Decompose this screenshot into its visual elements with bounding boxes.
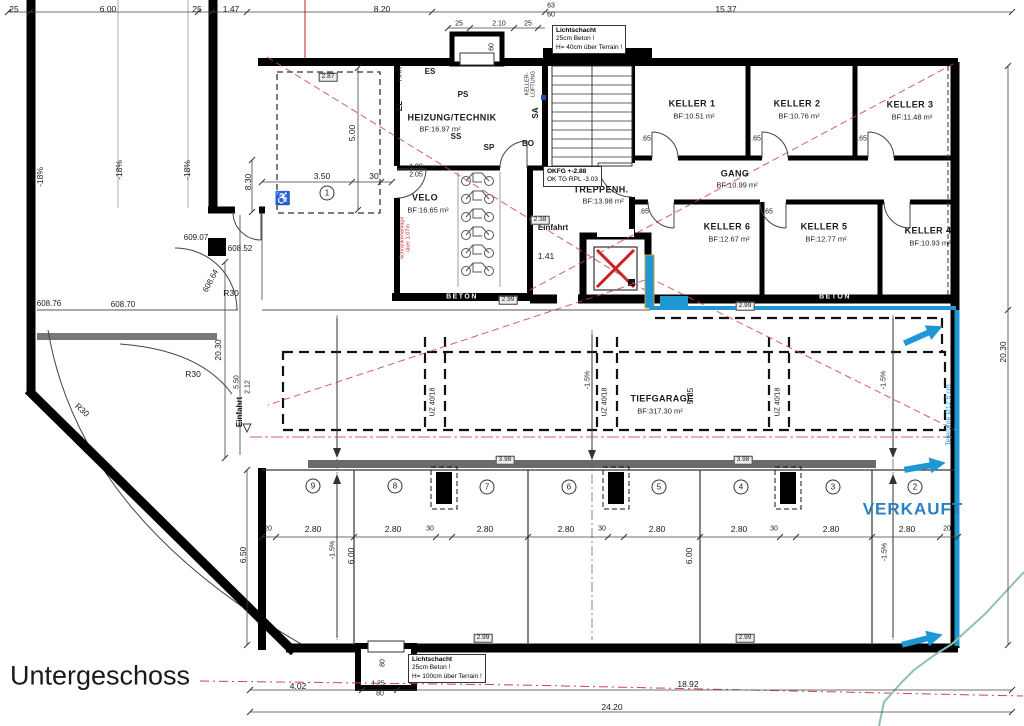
plan-label: 20.30 [999, 341, 1008, 362]
plan-label: 2.87 [319, 73, 338, 82]
room-label-keller-3: KELLER 3 [887, 101, 934, 110]
plan-label: UZ 40/18 [430, 388, 437, 417]
plan-label: R30 [185, 370, 201, 379]
room-label-heizung: HEIZUNG/TECHNIK [408, 114, 497, 123]
plan-label: R30 [73, 402, 90, 419]
plan-label: 608.64 [202, 268, 221, 293]
parking-spot-8: 8 [388, 479, 403, 494]
plan-label: -18% [183, 160, 192, 180]
plan-label: BF:12.77 m² [805, 235, 846, 243]
plan-label: 2.99 [474, 634, 493, 643]
plan-label: 6.00 [100, 5, 117, 14]
room-label-keller-4: KELLER 4 [905, 227, 952, 236]
plan-label: 2.80 [385, 525, 402, 534]
plan-label: 60 [489, 43, 496, 51]
plan-label: 2.99 [736, 634, 755, 643]
plan-label: 63 [547, 3, 555, 10]
plan-label: 5.00 [348, 125, 357, 142]
plan-label: SS [451, 133, 462, 141]
plan-label: 6.00 [685, 548, 694, 565]
parking-spot-1: 1 [320, 186, 335, 201]
plan-label: BF:16.65 m² [407, 206, 448, 214]
plan-label: 8.20 [374, 5, 391, 14]
plan-label: 2.38 [531, 216, 550, 225]
verkauft-label: VERKAUFT [863, 501, 964, 518]
plan-label: 2.80 [558, 525, 575, 534]
plan-label: 5.85 [686, 388, 695, 405]
plan-label: BF:13.98 m² [582, 197, 623, 205]
plan-label: 608.70 [111, 301, 135, 309]
plan-label: 6.50 [239, 547, 248, 564]
plan-label: 2.05 [409, 172, 423, 179]
plan-label: 30 [426, 526, 434, 533]
plan-label: -1.5% [585, 371, 592, 389]
plan-label: BETON [819, 294, 851, 301]
plan-label: 2.12 [245, 380, 252, 394]
plan-label: über 1.07m [406, 224, 412, 252]
plan-label: .65 [763, 209, 773, 216]
plan-label: BF:317.30 m² [637, 407, 682, 415]
plan-label: ES [425, 68, 436, 76]
plan-label: SP [484, 144, 495, 152]
plan-label: 2.10 [492, 21, 506, 28]
plan-label: 609.07 [184, 234, 208, 242]
plan-label: 15.37 [715, 5, 736, 14]
lichtschacht-callout-top: Lichtschacht25cm Beton !H= 40cm über Ter… [552, 25, 626, 54]
plan-label: .65 [641, 136, 651, 143]
plan-label: 2.80 [649, 525, 666, 534]
plan-label: HAK [397, 67, 404, 81]
plan-label: -1.5% [882, 543, 889, 561]
plan-label: SA [532, 107, 540, 118]
parking-spot-6: 6 [562, 480, 577, 495]
plan-label: 2.80 [477, 525, 494, 534]
plan-label: 3.50 [314, 172, 331, 181]
plan-label: 8.30 [244, 174, 253, 191]
plan-label: 20 [264, 526, 272, 533]
plan-label: 25 [524, 21, 532, 28]
plan-label: BF:10.99 m² [716, 181, 757, 189]
plan-label: 1.25 [371, 681, 385, 688]
okfg-callout: OKFG +-2.88OK TG RPL -3.03 [543, 166, 602, 187]
plan-label: 25 [9, 5, 18, 14]
plan-label: 30 [369, 172, 378, 181]
plan-label: 3.98 [734, 456, 753, 465]
plan-label: 608.52 [228, 245, 252, 253]
floor-plan: 256.00251.478.20636015.37252.102560-18%-… [0, 0, 1024, 726]
parking-spot-5: 5 [652, 480, 667, 495]
plan-label: 80 [376, 691, 384, 698]
plan-label: Einfahrt [538, 224, 568, 232]
room-label-keller-1: KELLER 1 [669, 100, 716, 109]
plan-label: -18% [36, 167, 45, 187]
wheelchair-icon: ♿ [275, 192, 291, 205]
lichtschacht-callout-bottom: Lichtschacht25cm Beton !H= 100cm über Te… [408, 654, 486, 683]
plan-label: LÜFTUNG [531, 71, 537, 97]
plan-label: R30 [223, 289, 239, 298]
plan-label: 2.99 [736, 302, 755, 311]
parking-spot-7: 7 [480, 480, 495, 495]
plan-label: 2.99 [499, 296, 518, 305]
plan-label: 25 [455, 21, 463, 28]
plan-label: -18% [115, 160, 124, 180]
plan-label: 3.98 [496, 456, 515, 465]
plan-label: EL [396, 101, 404, 111]
plan-label: BF:10.93 m² [909, 239, 950, 247]
plan-label: 2.80 [823, 525, 840, 534]
plan-label: 18.92 [677, 680, 698, 689]
plan-label: 20.30 [214, 339, 223, 360]
plan-label: .65 [751, 136, 761, 143]
room-label-gang: GANG [721, 170, 750, 179]
plan-label: 5.50 [234, 375, 241, 389]
room-label-keller-6: KELLER 6 [704, 223, 751, 232]
plan-label: 60 [547, 12, 555, 19]
plan-label: BF:11.48 m² [892, 113, 933, 121]
plan-label: 608.76 [37, 300, 61, 308]
plan-label: 6.00 [347, 548, 356, 565]
plan-label: 20 [943, 526, 951, 533]
parking-spot-2: 2 [908, 480, 923, 495]
plan-label: BF:12.67 m² [708, 235, 749, 243]
plan-label: .65 [857, 136, 867, 143]
plan-label: 2.80 [899, 525, 916, 534]
plan-label: -1.5% [330, 541, 337, 559]
plan-label: BF:10.76 m² [778, 112, 819, 120]
plan-label: BETON [389, 187, 396, 219]
plan-label: 4.02 [290, 682, 307, 691]
plan-label: UZ 40/18 [775, 388, 782, 417]
plan-label: 1.08 [409, 164, 423, 171]
room-label-keller-2: KELLER 2 [774, 100, 821, 109]
plan-label: 80 [380, 659, 387, 667]
plan-label: UZ 40/18 [602, 388, 609, 417]
plan-label: 25 [192, 5, 201, 14]
plan-label: Telerohre Ø12.5 cm [946, 384, 953, 445]
plan-label: 30 [770, 526, 778, 533]
page-title: Untergeschoss [10, 663, 190, 690]
plan-label: 1.47 [223, 5, 240, 14]
parking-spot-4: 4 [734, 480, 749, 495]
plan-label: 2.80 [305, 525, 322, 534]
plan-label: 24.20 [601, 703, 622, 712]
parking-spot-3: 3 [826, 480, 841, 495]
plan-label: BO [522, 140, 534, 148]
plan-label: -1.5% [881, 371, 888, 389]
room-label-velo: VELO [412, 194, 438, 203]
plan-label: 30 [598, 526, 606, 533]
plan-label: Einfahrt [236, 397, 244, 427]
plan-label: 2.80 [731, 525, 748, 534]
plan-label: .65 [639, 209, 649, 216]
label-layer: 256.00251.478.20636015.37252.102560-18%-… [0, 0, 1024, 726]
plan-label: BF:10.51 m² [673, 112, 714, 120]
room-label-keller-5: KELLER 5 [801, 223, 848, 232]
parking-spot-9: 9 [306, 479, 321, 494]
plan-label: BETON [446, 294, 478, 301]
plan-label: PS [458, 91, 469, 99]
plan-label: 1.41 [538, 252, 555, 261]
